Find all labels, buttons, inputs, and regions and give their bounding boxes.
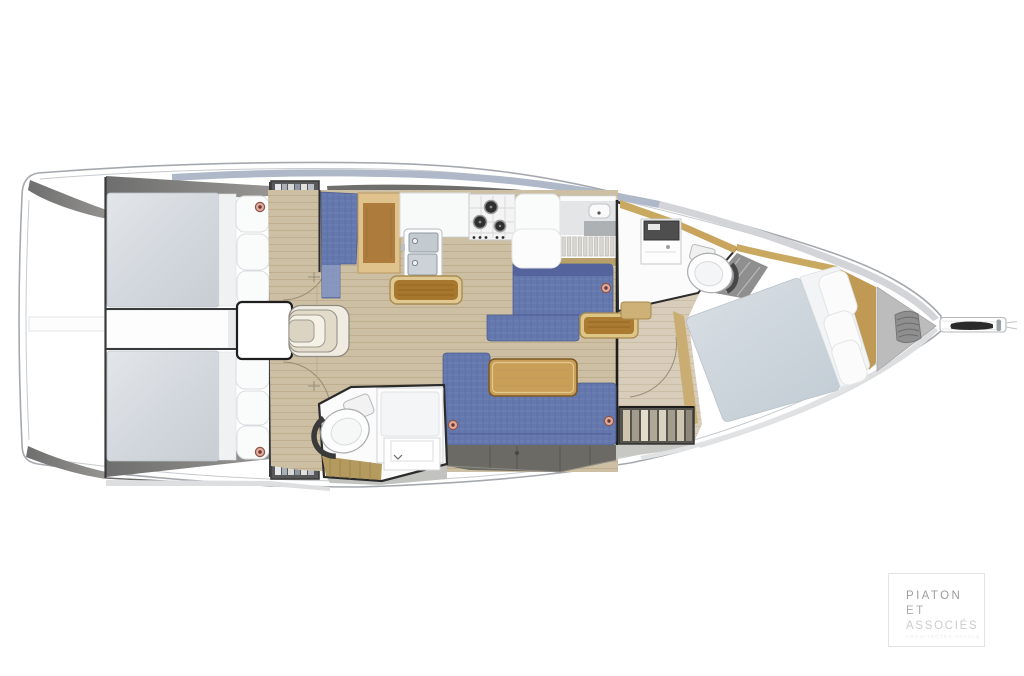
svg-text:ASSOCIÉS: ASSOCIÉS: [906, 619, 978, 632]
svg-text:PIATON: PIATON: [906, 590, 962, 602]
svg-text:ARCHITECTES NAVALS: ARCHITECTES NAVALS: [906, 634, 981, 639]
svg-text:ET: ET: [906, 605, 926, 617]
